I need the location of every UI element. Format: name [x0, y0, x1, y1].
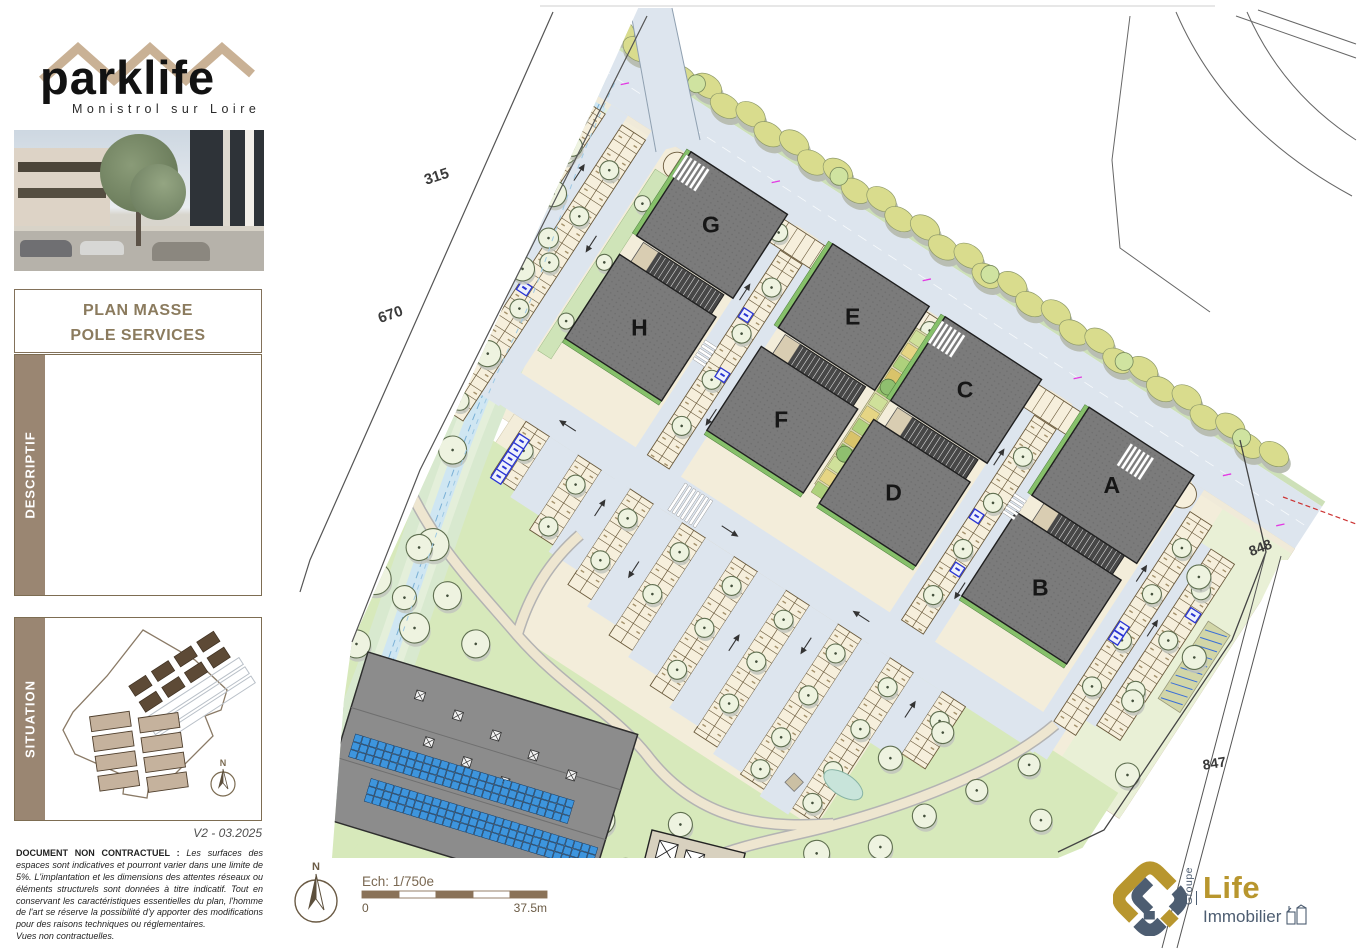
logo-life: Life — [1203, 872, 1310, 903]
descriptif-panel: DESCRIPTIF — [14, 354, 262, 596]
parcel-label-670: 670 — [376, 303, 405, 327]
svg-text:N: N — [312, 861, 320, 873]
building-label-B: B — [1032, 575, 1049, 601]
building-label-D: D — [885, 479, 902, 505]
drawing-title: PLAN MASSE POLE SERVICES — [14, 289, 262, 353]
disclaimer-body: Les surfaces des espaces sont indicative… — [16, 848, 263, 929]
plan-masse-sheet: GHEFCDAB315670848847NEch: 1/750e037.5m p… — [0, 0, 1357, 950]
situation-minimap: N — [45, 618, 261, 818]
project-photo — [14, 130, 264, 271]
svg-text:37.5m: 37.5m — [514, 901, 547, 915]
life-logo-icon — [1113, 860, 1187, 936]
buildings-icon — [1284, 903, 1310, 925]
situation-content: N — [45, 618, 261, 820]
descriptif-tab: DESCRIPTIF — [15, 355, 45, 595]
descriptif-content — [45, 355, 261, 595]
situation-label: SITUATION — [23, 680, 38, 758]
photo-car — [80, 241, 124, 255]
logo-immobilier: Immobilier — [1203, 908, 1281, 925]
svg-text:N: N — [220, 758, 227, 768]
building-label-H: H — [631, 314, 648, 340]
situation-panel: SITUATION N — [14, 617, 262, 821]
parcel-label-847: 847 — [1201, 753, 1227, 772]
situation-tab: SITUATION — [15, 618, 45, 820]
descriptif-label: DESCRIPTIF — [23, 431, 38, 518]
building-label-A: A — [1103, 472, 1120, 498]
title-line2: POLE SERVICES — [15, 324, 261, 349]
scale-bar: Ech: 1/750e037.5m — [362, 874, 547, 915]
groupe-life-immobilier-logo: Groupe Life Immobilier — [1113, 860, 1313, 936]
building-label-G: G — [702, 212, 720, 238]
brand-location: Monistrol sur Loire — [72, 102, 260, 116]
svg-text:Ech: 1/750e: Ech: 1/750e — [362, 874, 434, 889]
building-label-F: F — [774, 406, 788, 432]
disclaimer-heading: DOCUMENT NON CONTRACTUEL : — [16, 848, 180, 858]
svg-text:0: 0 — [362, 901, 369, 915]
photo-car — [20, 240, 72, 257]
building-label-E: E — [845, 304, 860, 330]
version-label: V2 - 03.2025 — [14, 826, 262, 840]
brand-logo: parklife Monistrol sur Loire — [36, 36, 266, 126]
disclaimer-note: Vues non contractuelles. — [16, 931, 263, 943]
logo-groupe: Groupe — [1183, 891, 1197, 905]
parcel-label-315: 315 — [422, 165, 451, 189]
legal-disclaimer: DOCUMENT NON CONTRACTUEL : Les surfaces … — [16, 848, 263, 943]
photo-car — [152, 242, 210, 261]
title-line1: PLAN MASSE — [15, 299, 261, 324]
brand-name: parklife — [40, 50, 215, 105]
north-compass: N — [295, 861, 337, 922]
building-label-C: C — [957, 377, 974, 403]
